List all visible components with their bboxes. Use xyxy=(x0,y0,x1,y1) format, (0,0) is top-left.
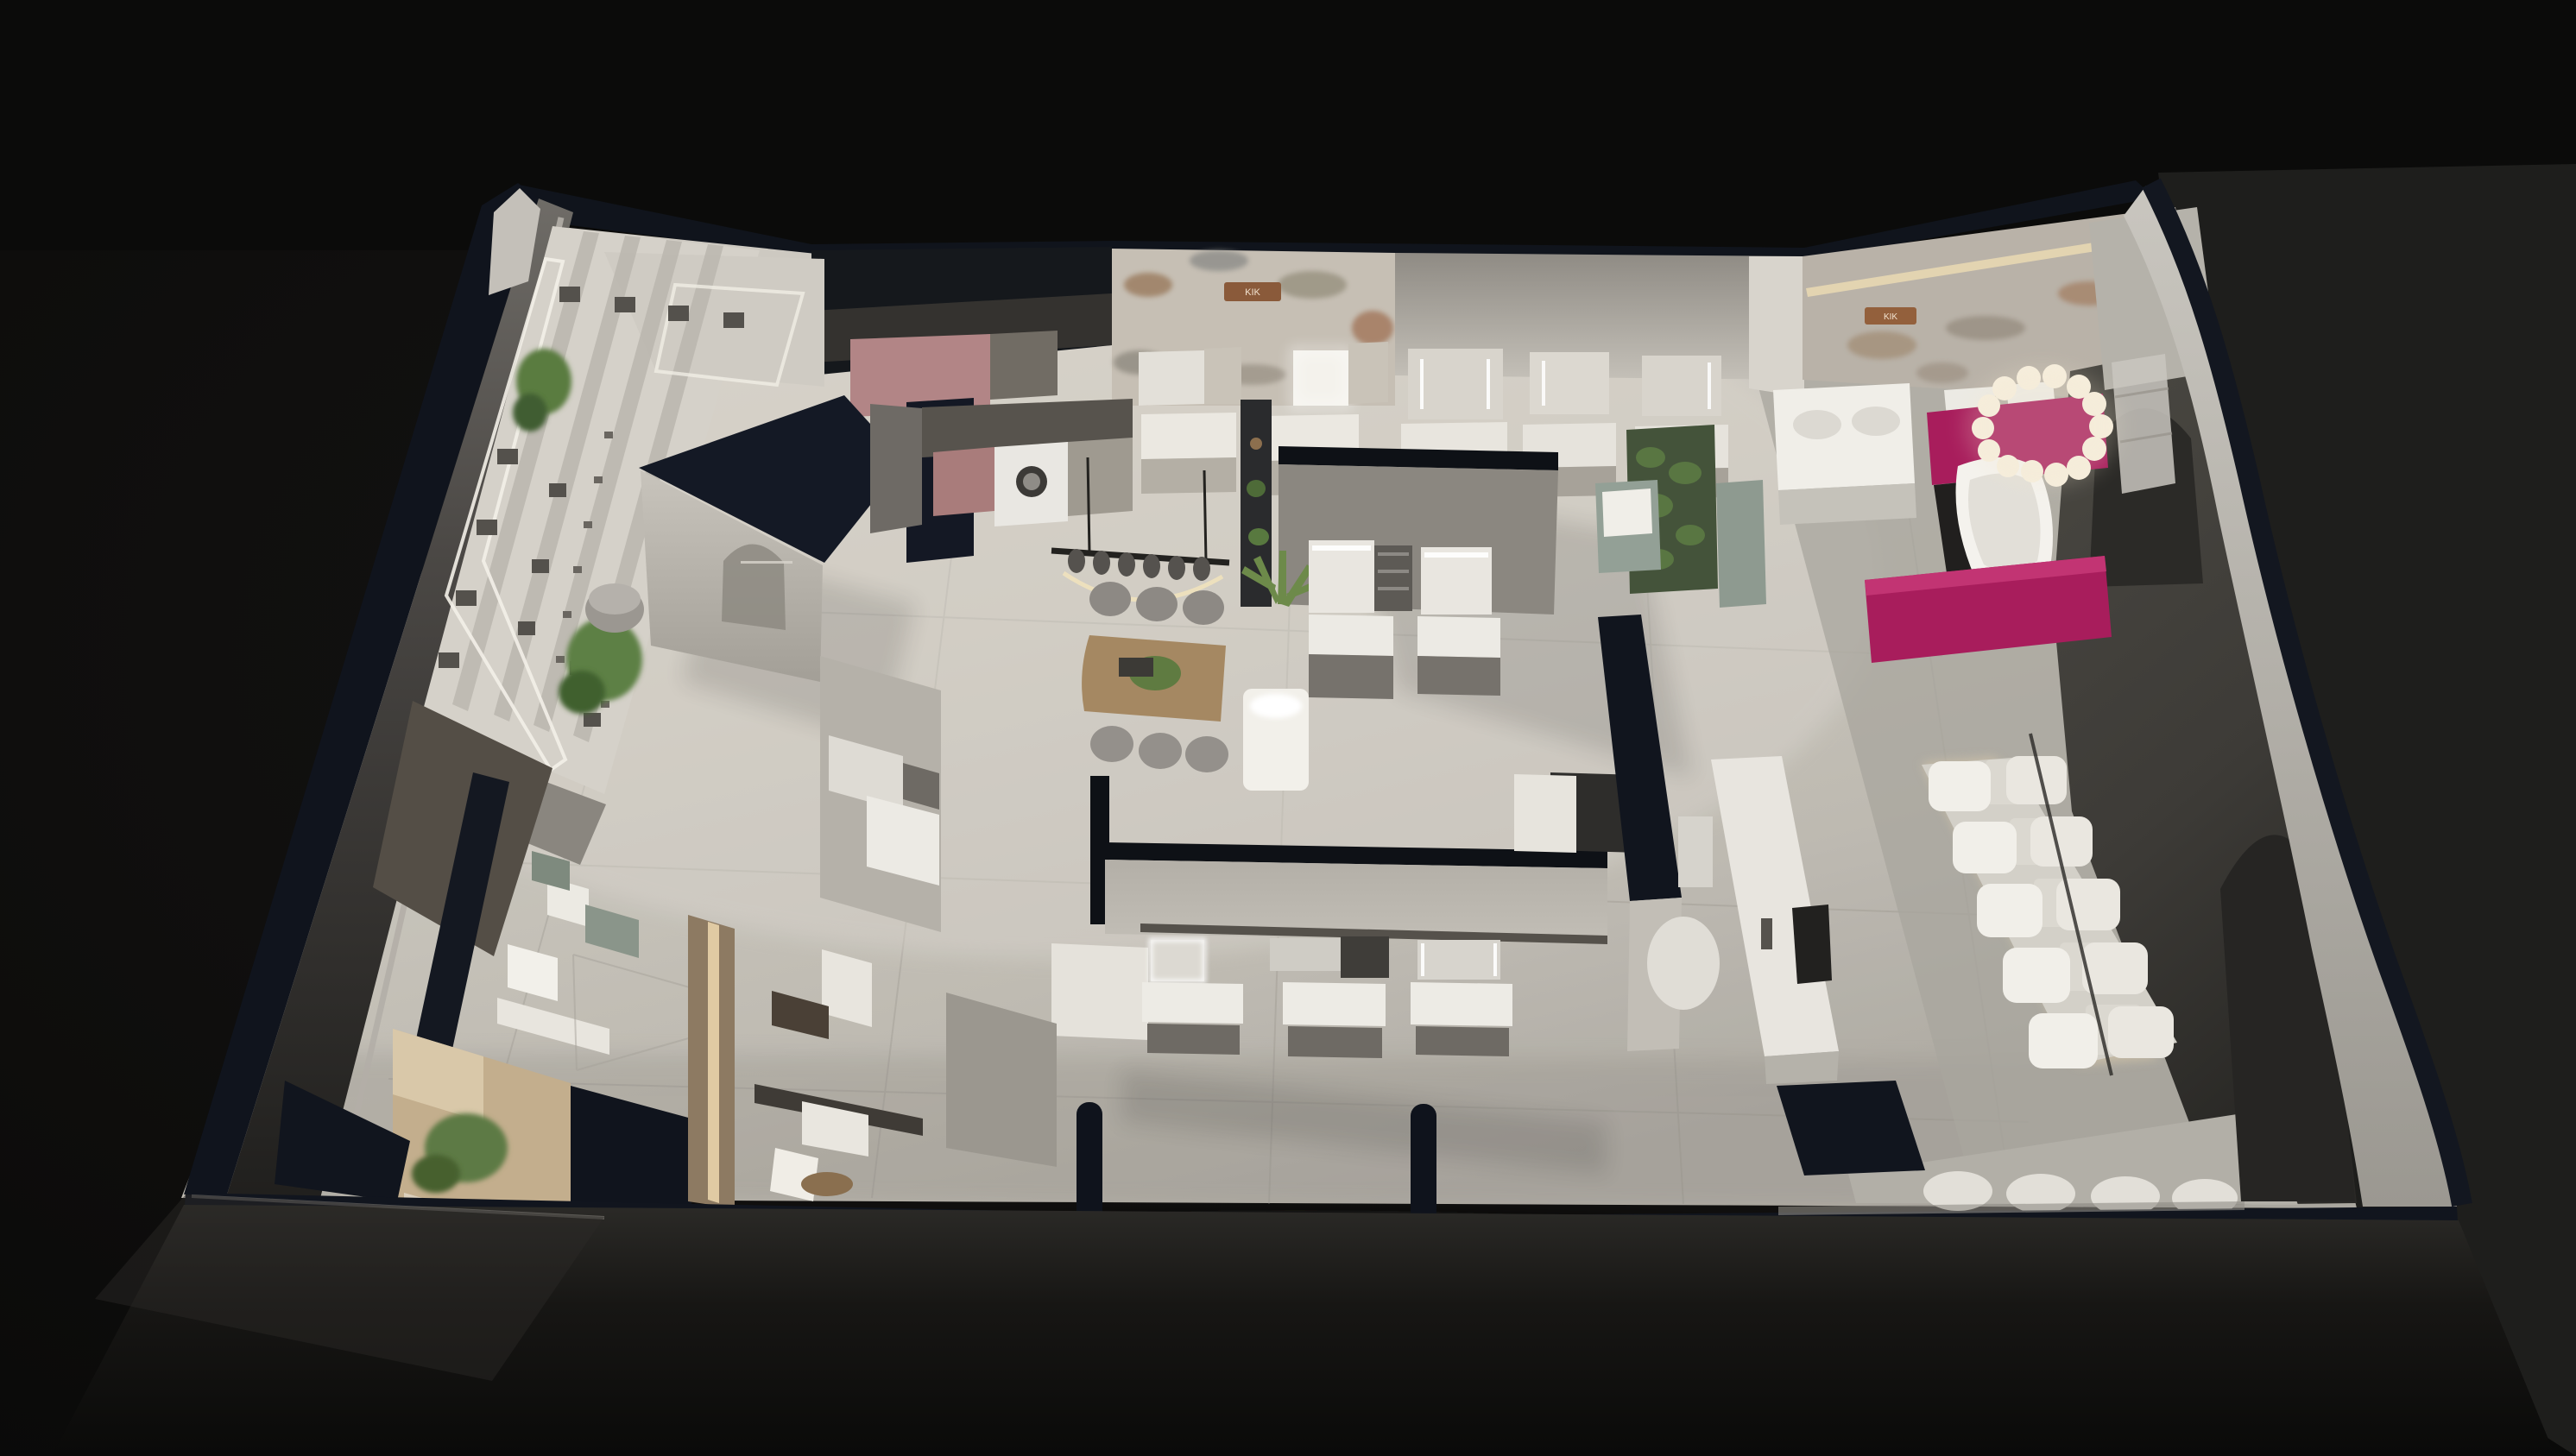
svg-text:KIK: KIK xyxy=(1245,287,1260,298)
svg-text:KIK: KIK xyxy=(1884,312,1897,322)
